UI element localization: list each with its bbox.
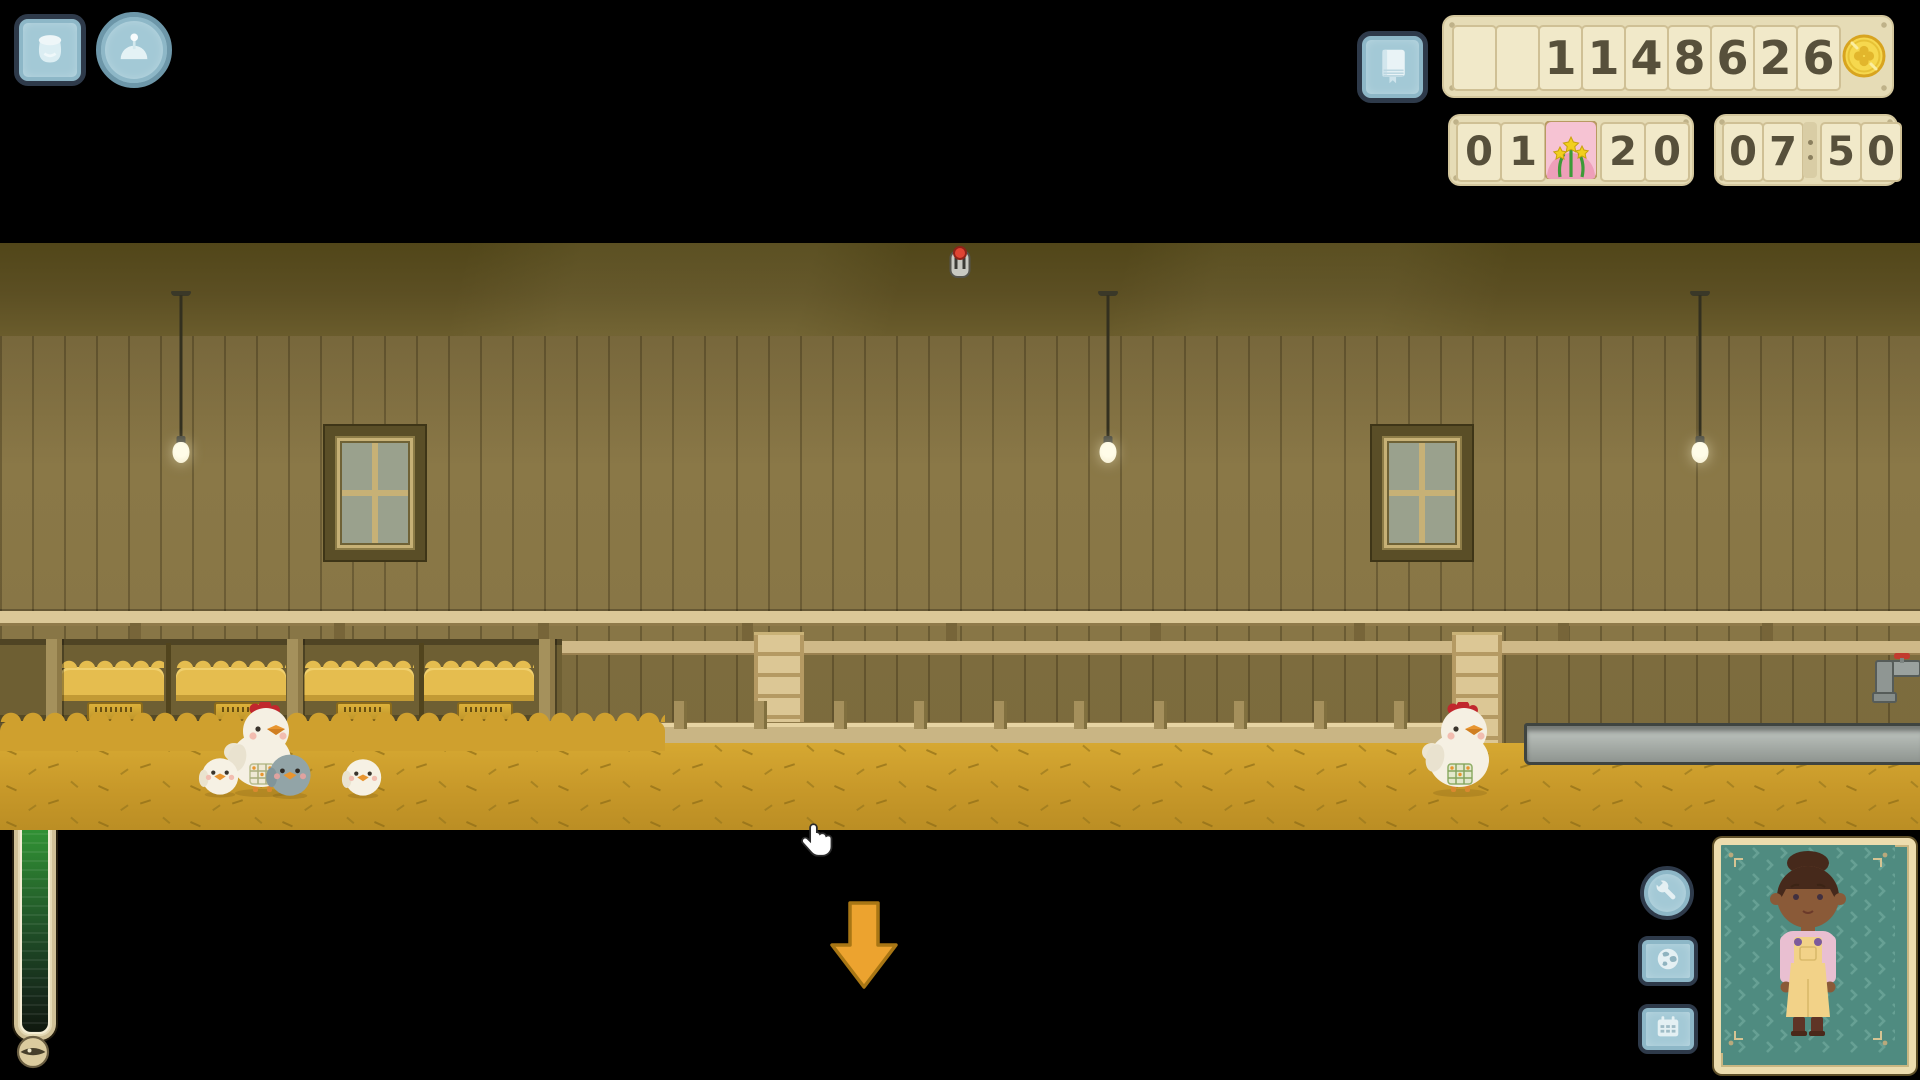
portrait-background: [1721, 845, 1895, 1053]
date-panel: 0 1 2 0: [1448, 114, 1694, 186]
character-portrait[interactable]: [1714, 838, 1916, 1074]
time-colon: [1803, 122, 1817, 178]
faucet[interactable]: [1864, 649, 1920, 711]
money-digit-cell: 8: [1667, 25, 1712, 91]
coop-scene: [0, 243, 1920, 830]
world-button[interactable]: [1638, 936, 1698, 986]
nest-hay: [176, 667, 286, 701]
money-digit-cell: 1: [1581, 25, 1626, 91]
water-trough[interactable]: [1524, 723, 1920, 765]
date-digit-cell: 0: [1644, 122, 1690, 182]
fence-posts: [640, 701, 1470, 729]
nest-divider: [419, 643, 424, 721]
feed-bag-icon: [31, 29, 69, 71]
journal-book-icon: [1374, 45, 1412, 89]
nest-divider: [166, 643, 171, 721]
date-digit-cell: 2: [1600, 122, 1646, 182]
chick-grey[interactable]: [264, 747, 316, 803]
time-digit-cell: 0: [1722, 122, 1764, 182]
calendar-icon: [1654, 1013, 1682, 1045]
money-digit-cell: [1452, 25, 1497, 91]
globe-icon: [1654, 945, 1682, 977]
brooder-lamp-button[interactable]: [96, 12, 172, 88]
hanging-lamp: [1096, 291, 1120, 463]
calendar-button[interactable]: [1638, 1004, 1698, 1054]
journal-button[interactable]: [1357, 31, 1428, 103]
hen-apron[interactable]: [1422, 702, 1498, 802]
time-panel: 0 7 5 0: [1714, 114, 1898, 186]
money-digit-cell: 6: [1796, 25, 1841, 91]
time-digit-cell: 5: [1820, 122, 1862, 182]
money-digit-cell: 1: [1538, 25, 1583, 91]
game-screen: { "hud": { "top_left": { "feed_button_ic…: [0, 0, 1920, 1080]
chick-white[interactable]: [197, 751, 243, 802]
heat-lamp-icon: [114, 28, 154, 72]
eye-button[interactable]: [16, 1035, 50, 1073]
time-digit-cell: 7: [1762, 122, 1804, 182]
money-digit-cell: [1495, 25, 1540, 91]
feed-bag-button[interactable]: [14, 14, 86, 86]
time-digit-cell: 0: [1860, 122, 1902, 182]
down-arrow-button[interactable]: [830, 901, 898, 993]
wrench-icon: [1653, 877, 1681, 909]
hanging-lamp: [169, 291, 193, 463]
hay-pile: [0, 721, 665, 751]
date-digit-cell: 0: [1456, 122, 1502, 182]
window: [1372, 426, 1472, 560]
chick-white[interactable]: [340, 752, 386, 803]
money-panel: 1 1 4 8 6 2 6: [1442, 15, 1894, 98]
money-digit-cell: 6: [1710, 25, 1755, 91]
window: [325, 426, 425, 560]
money-digit-cell: 4: [1624, 25, 1669, 91]
nest-hay: [304, 667, 414, 701]
clover-coin-icon: [1842, 34, 1886, 82]
settings-button[interactable]: [1640, 866, 1694, 920]
money-digit-cell: 2: [1753, 25, 1798, 91]
date-digit-cell: 1: [1500, 122, 1546, 182]
closed-eye-icon: [16, 1054, 50, 1073]
nest-hay: [424, 667, 534, 701]
nest-hay: [60, 667, 164, 701]
hanging-lamp: [1688, 291, 1712, 463]
daffodil-flower-icon: [1545, 121, 1597, 183]
